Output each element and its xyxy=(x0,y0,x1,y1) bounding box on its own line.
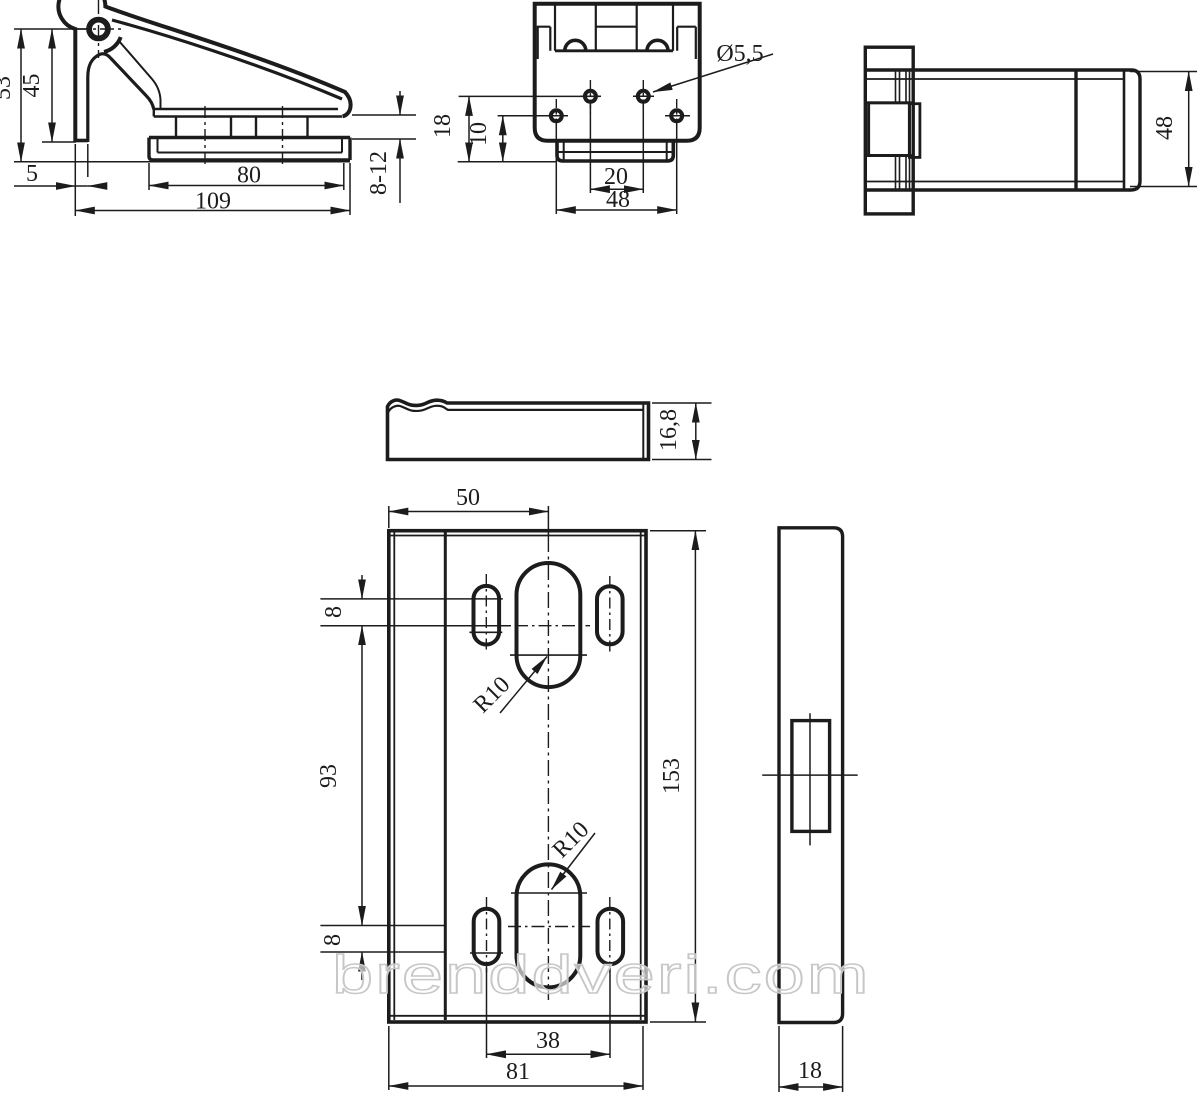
svg-text:53: 53 xyxy=(0,76,16,100)
svg-text:81: 81 xyxy=(506,1059,530,1085)
svg-text:80: 80 xyxy=(237,163,261,189)
svg-text:5: 5 xyxy=(26,161,38,187)
svg-text:45: 45 xyxy=(19,74,45,98)
svg-text:50: 50 xyxy=(456,485,480,511)
svg-text:10: 10 xyxy=(466,122,492,146)
svg-text:18: 18 xyxy=(798,1058,822,1084)
svg-text:109: 109 xyxy=(195,189,231,215)
svg-text:38: 38 xyxy=(536,1028,560,1054)
svg-text:8: 8 xyxy=(321,606,347,618)
svg-text:8-12: 8-12 xyxy=(366,151,392,195)
svg-text:Ø5,5: Ø5,5 xyxy=(716,41,763,67)
svg-text:48: 48 xyxy=(606,187,630,213)
svg-text:48: 48 xyxy=(1152,116,1178,140)
svg-text:18: 18 xyxy=(430,114,456,138)
svg-text:16,8: 16,8 xyxy=(656,409,682,451)
svg-text:93: 93 xyxy=(316,764,342,788)
svg-text:153: 153 xyxy=(659,758,685,794)
svg-text:brenddveri.com: brenddveri.com xyxy=(332,944,871,1005)
